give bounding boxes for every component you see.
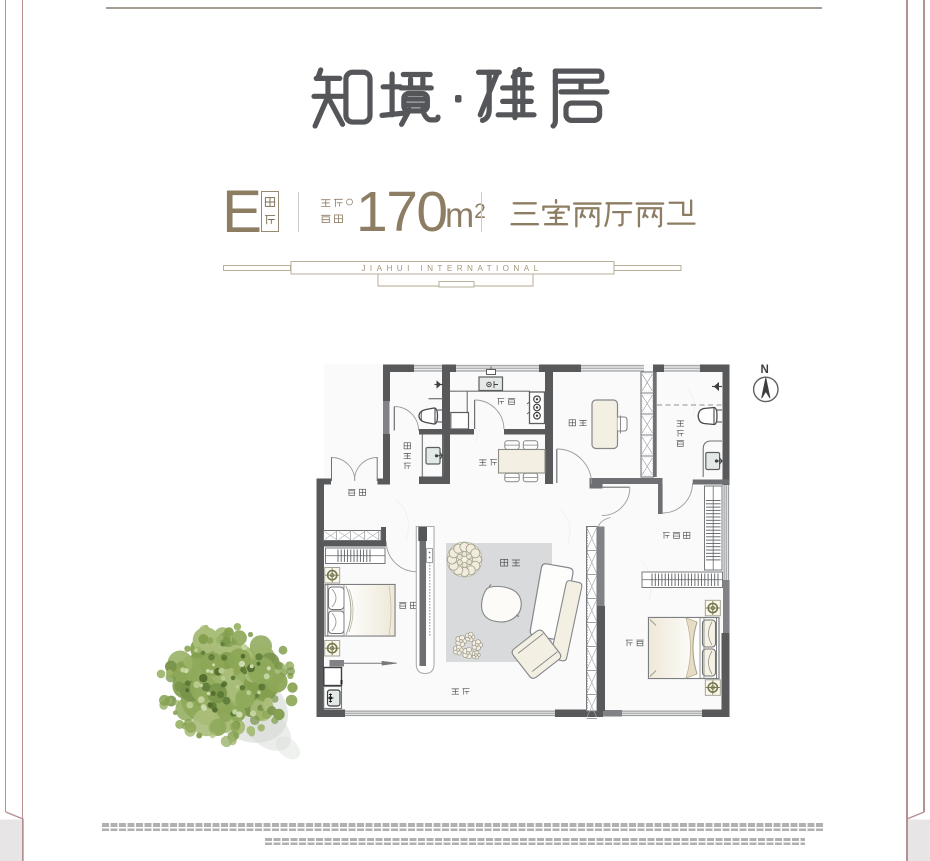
svg-text:N: N: [761, 364, 769, 376]
svg-text:JIAHUI INTERNATIONAL: JIAHUI INTERNATIONAL: [361, 264, 542, 273]
